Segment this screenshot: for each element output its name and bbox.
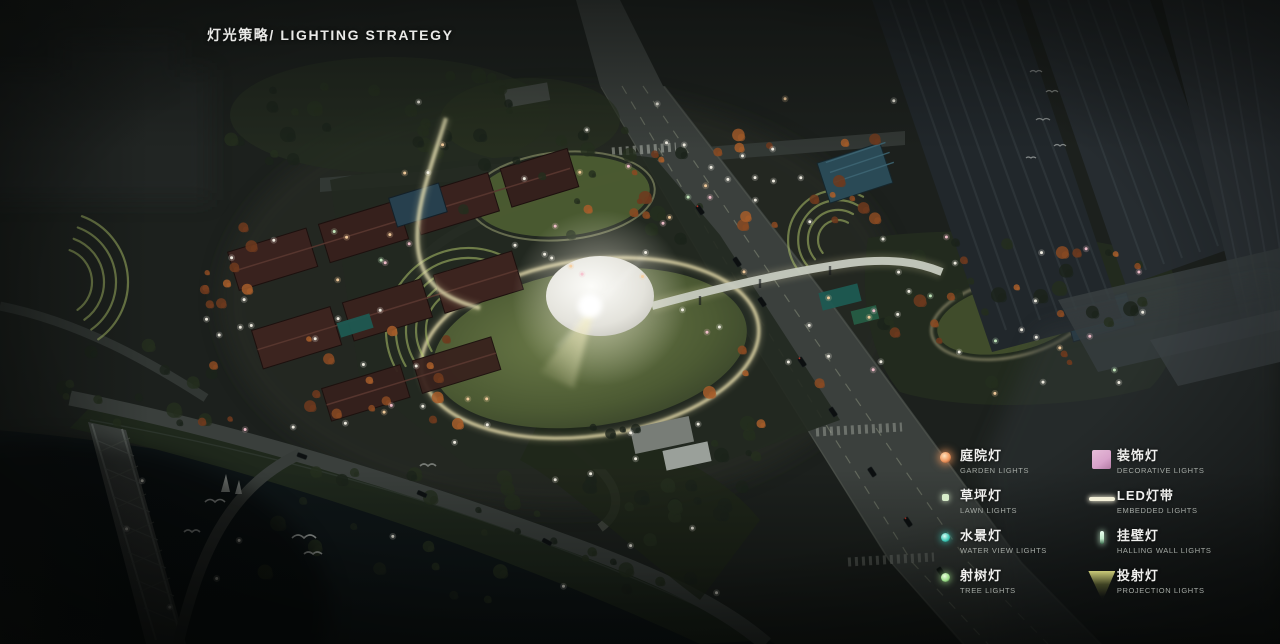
legend-label-en: PROJECTION LIGHTS [1117,586,1205,595]
decorative-light-square-icon [1092,450,1111,469]
lighting-strategy-board: 灯光策略/ LIGHTING STRATEGY 庭院灯 GARDEN LIGHT… [0,0,1280,644]
legend-label-en: EMBEDDED LIGHTS [1117,506,1198,515]
legend-label-zh: 草坪灯 [960,489,1017,503]
legend-label-en: DECORATIVE LIGHTS [1117,466,1205,475]
legend-column-2: 装饰灯 DECORATIVE LIGHTS LED灯带 EMBEDDED LIG… [1087,449,1212,609]
legend-item-projection-lights: 投射灯 PROJECTION LIGHTS [1087,569,1212,595]
legend-item-tree-lights: 射树灯 TREE LIGHTS [930,569,1047,595]
legend-item-wall-lights: 挂壁灯 HALLING WALL LIGHTS [1087,529,1212,555]
legend-label-zh: 水景灯 [960,529,1047,543]
legend-label-zh: 装饰灯 [1117,449,1205,463]
page-title: 灯光策略/ LIGHTING STRATEGY [207,25,454,45]
lawn-light-dot-icon [942,494,949,501]
legend-label-zh: 庭院灯 [960,449,1029,463]
legend-label-en: TREE LIGHTS [960,586,1016,595]
legend-item-decorative-lights: 装饰灯 DECORATIVE LIGHTS [1087,449,1212,475]
legend-item-garden-lights: 庭院灯 GARDEN LIGHTS [930,449,1047,475]
legend-label-zh: LED灯带 [1117,489,1198,503]
legend-item-lawn-lights: 草坪灯 LAWN LIGHTS [930,489,1047,515]
legend-label-en: HALLING WALL LIGHTS [1117,546,1212,555]
legend-item-led-strip: LED灯带 EMBEDDED LIGHTS [1087,489,1212,515]
legend-label-zh: 挂壁灯 [1117,529,1212,543]
legend-column-1: 庭院灯 GARDEN LIGHTS 草坪灯 LAWN LIGHTS 水景灯 WA… [930,449,1047,609]
legend-label-en: LAWN LIGHTS [960,506,1017,515]
legend-label-en: WATER VIEW LIGHTS [960,546,1047,555]
projection-light-cone-icon [1088,571,1115,601]
legend-label-en: GARDEN LIGHTS [960,466,1029,475]
legend-label-zh: 射树灯 [960,569,1016,583]
led-strip-line-icon [1089,497,1115,501]
water-light-dot-icon [941,533,950,542]
lighting-legend: 庭院灯 GARDEN LIGHTS 草坪灯 LAWN LIGHTS 水景灯 WA… [930,449,1212,609]
garden-light-dot-icon [940,452,951,463]
legend-item-water-view-lights: 水景灯 WATER VIEW LIGHTS [930,529,1047,555]
tree-light-dot-icon [941,573,950,582]
wall-light-bar-icon [1100,531,1104,544]
legend-label-zh: 投射灯 [1117,569,1205,583]
